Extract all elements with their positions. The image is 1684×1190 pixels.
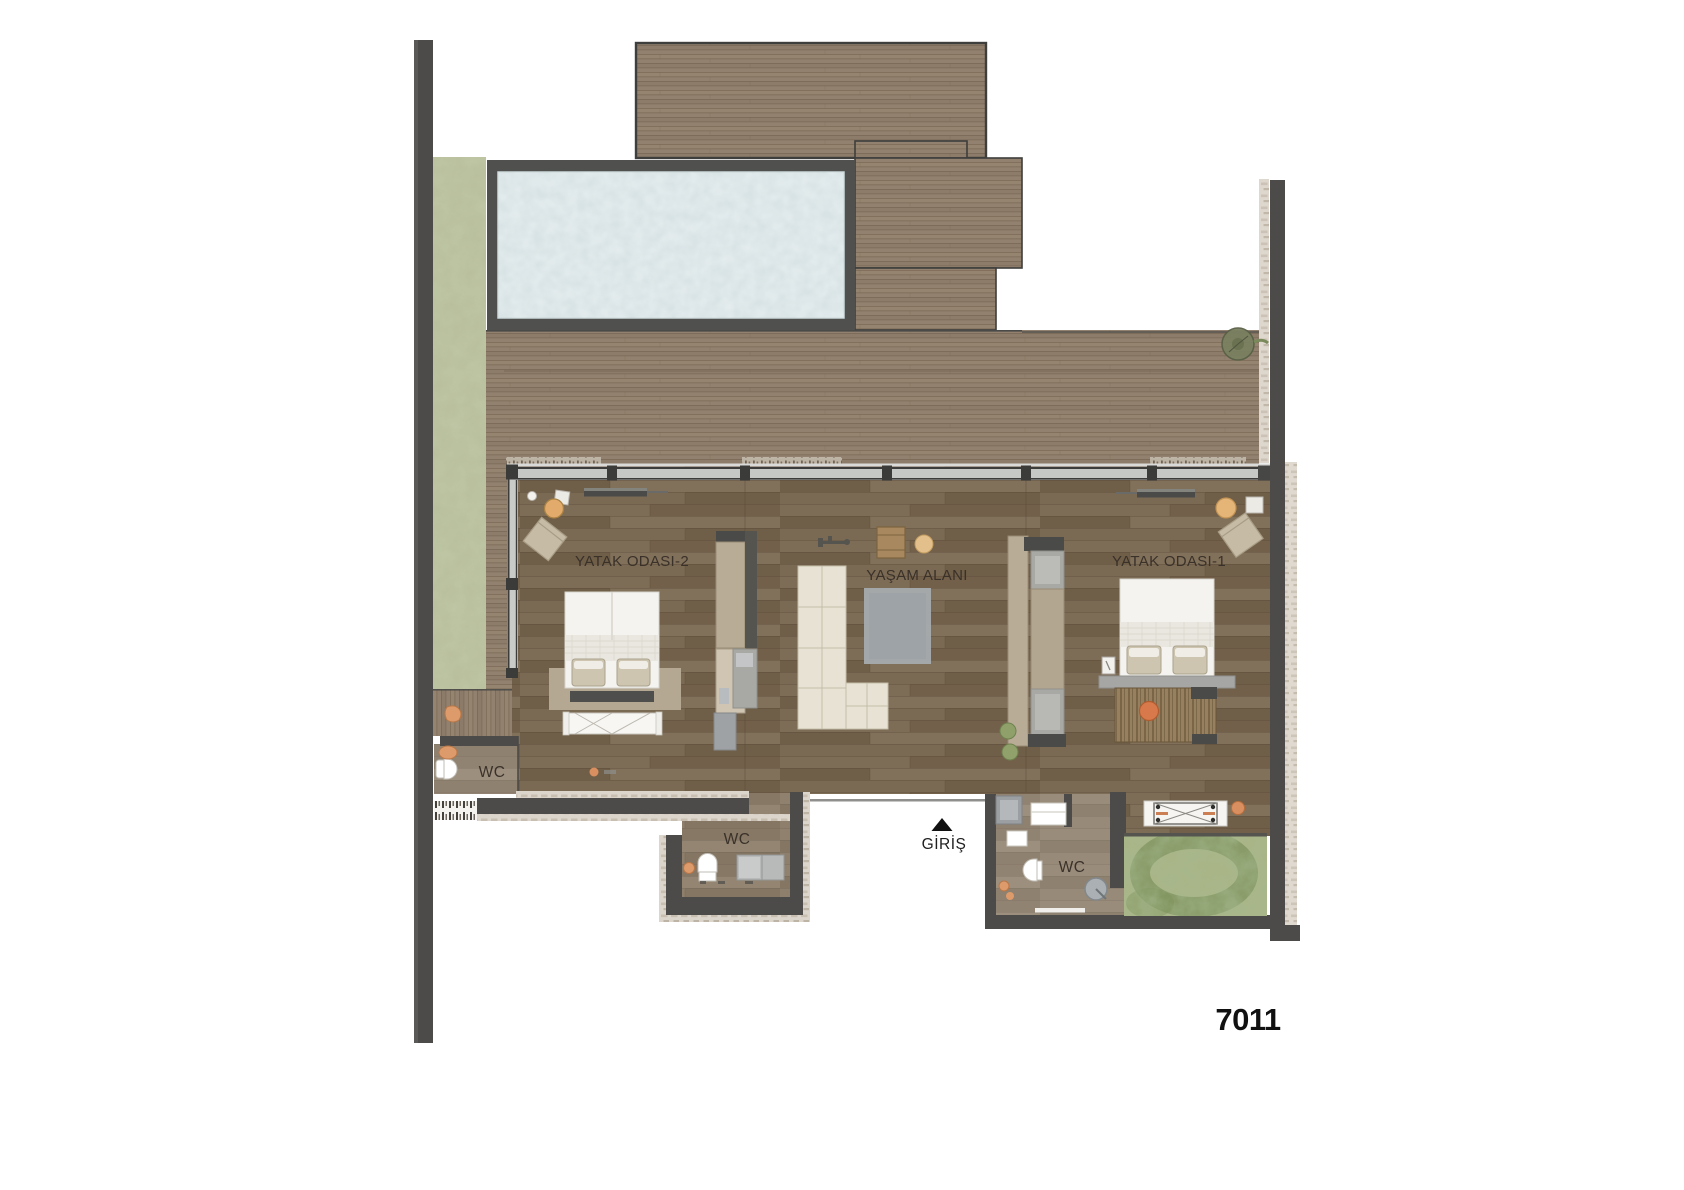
svg-text:YATAK ODASI-2: YATAK ODASI-2	[575, 553, 689, 570]
svg-text:WC: WC	[1059, 859, 1086, 876]
svg-text:WC: WC	[724, 831, 751, 848]
svg-text:YAŞAM ALANI: YAŞAM ALANI	[866, 567, 967, 584]
svg-text:YATAK ODASI-1: YATAK ODASI-1	[1112, 553, 1226, 570]
svg-text:WC: WC	[479, 764, 506, 781]
svg-text:7011: 7011	[1215, 1002, 1281, 1037]
svg-text:GİRİŞ: GİRİŞ	[922, 835, 967, 853]
